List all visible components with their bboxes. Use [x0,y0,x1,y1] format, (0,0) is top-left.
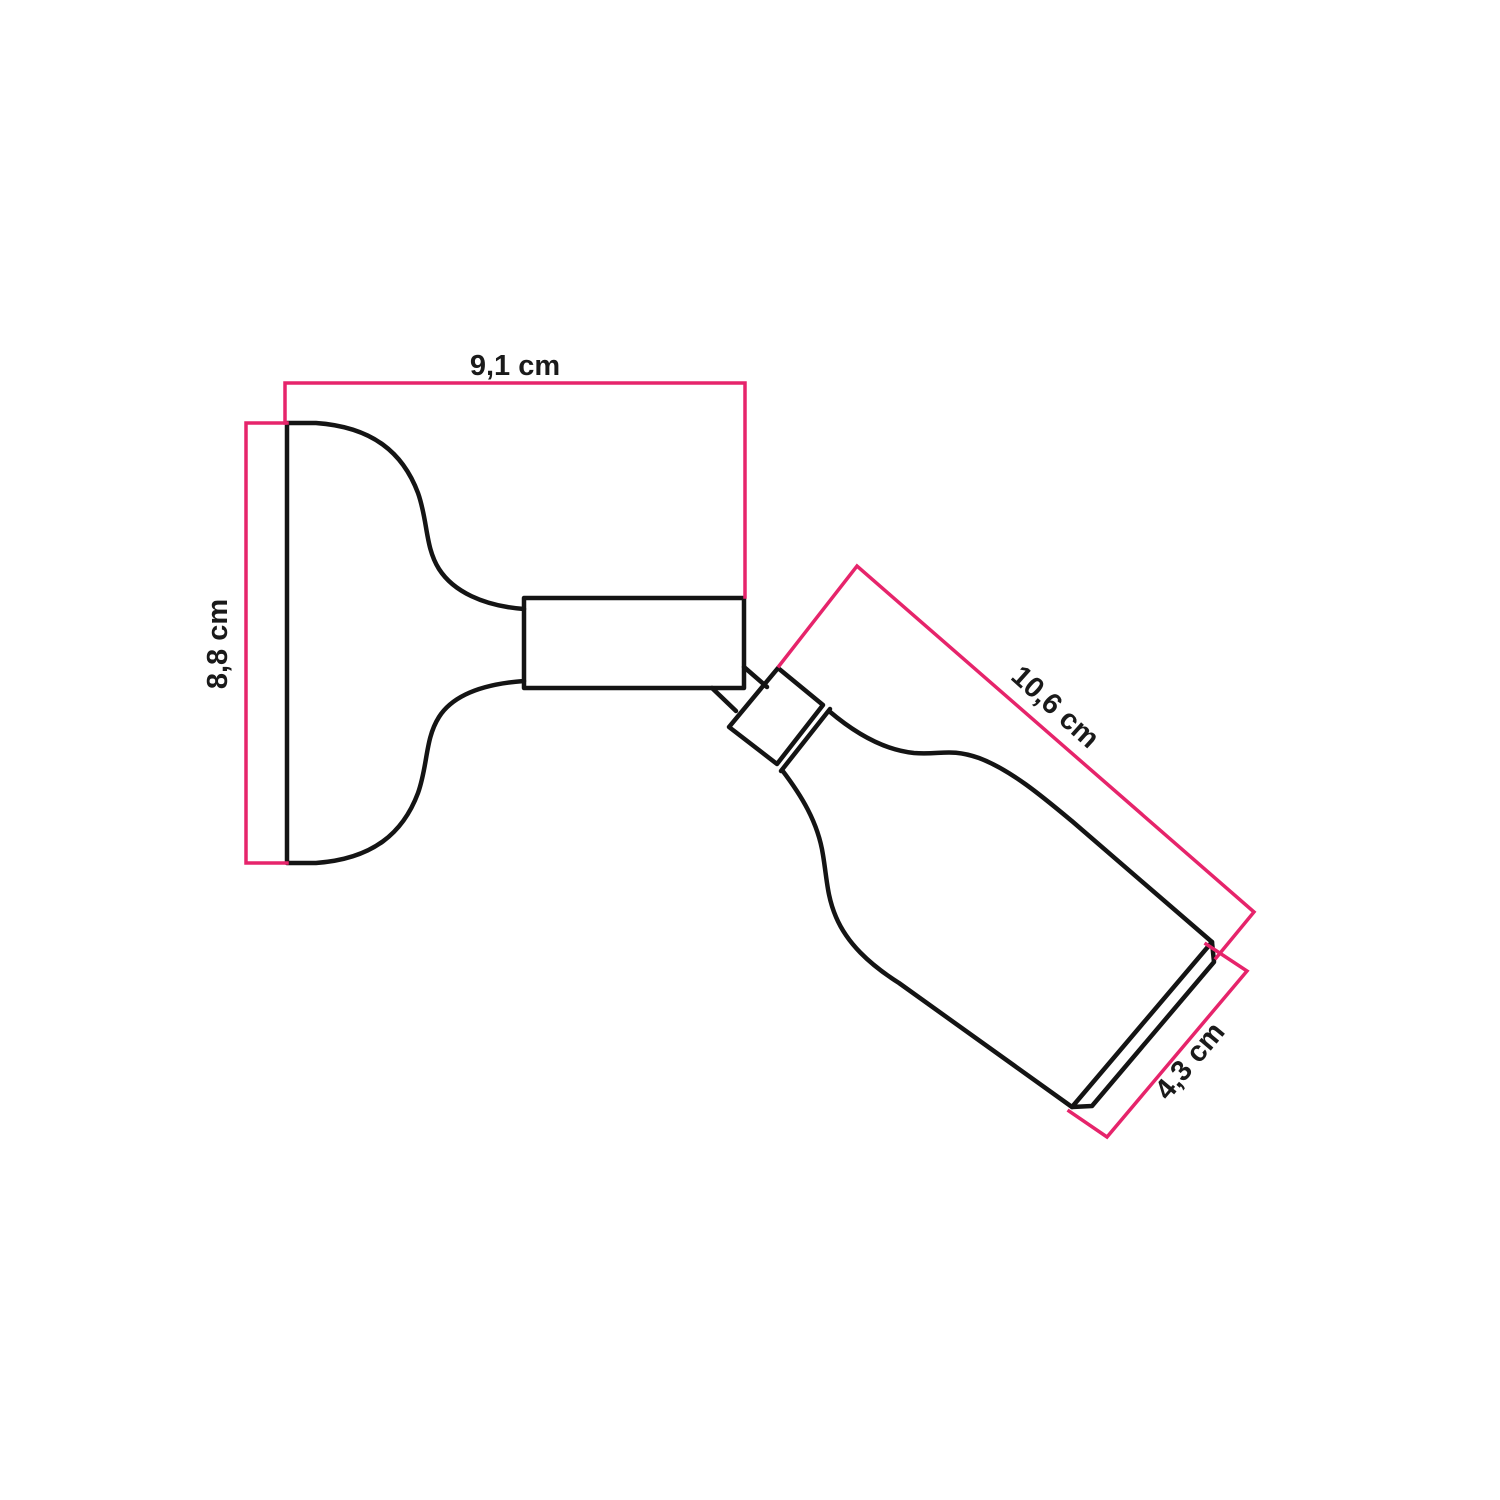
dimension-labels-group: 9,1 cm 8,8 cm 10,6 cm 4,3 cm [202,350,1231,1106]
socket-cylinder [524,598,744,688]
dimension-line-width [285,383,745,597]
dimension-lines-group [246,383,1254,1137]
shade-lower-profile [782,770,1072,1107]
dimension-label-height: 8,8 cm [202,599,234,689]
dimension-line-length [779,566,1254,958]
hinge-rim-line [781,709,830,771]
dimension-label-width: 9,1 cm [470,350,560,382]
dimension-drawing-canvas: 9,1 cm 8,8 cm 10,6 cm 4,3 cm [0,0,1500,1500]
dimension-label-diameter: 4,3 cm [1149,1016,1232,1106]
wall-lamp-dimension-diagram: 9,1 cm 8,8 cm 10,6 cm 4,3 cm [0,0,1500,1500]
wall-mount-cup-outline [287,423,524,863]
dimension-line-height [246,423,287,863]
lamp-outline-group [287,423,1214,1107]
